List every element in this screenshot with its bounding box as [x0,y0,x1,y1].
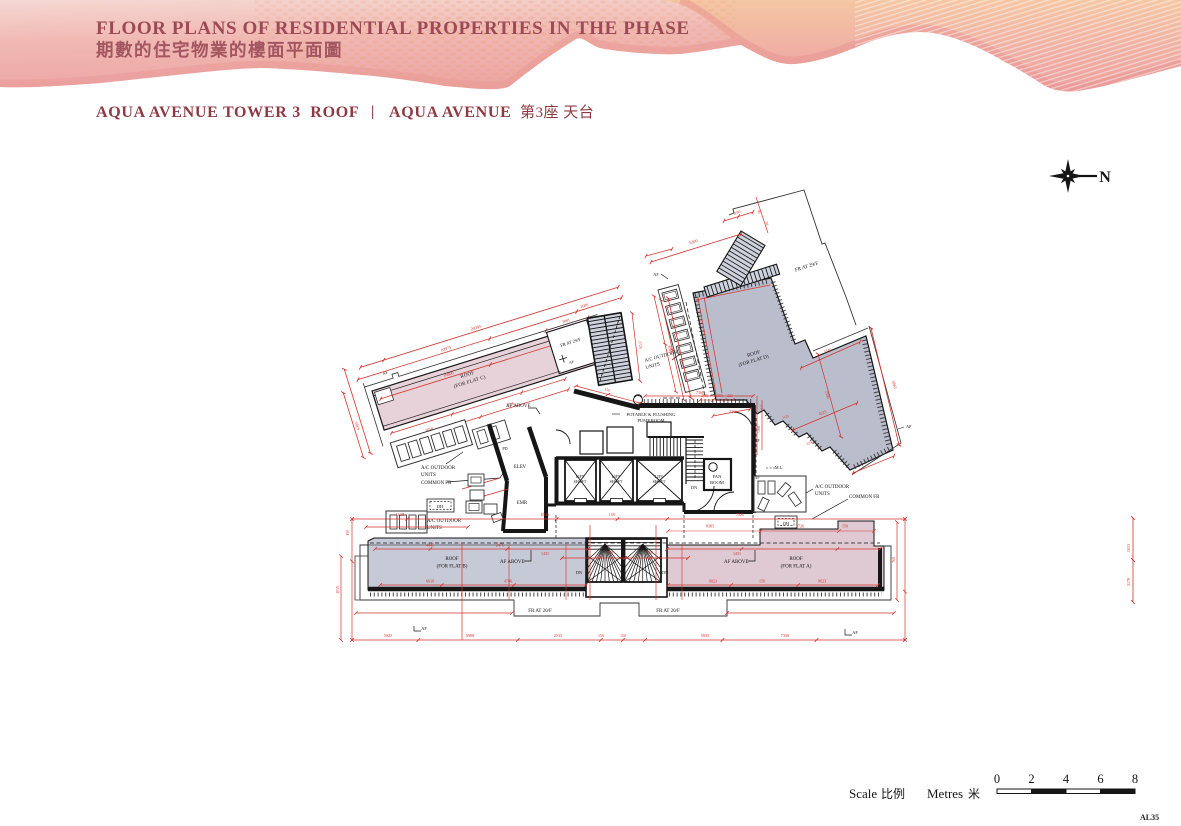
svg-text:2: 2 [1028,772,1034,786]
svg-text:ROOF: ROOF [789,557,803,562]
svg-text:150: 150 [604,387,611,392]
svg-text:5865: 5865 [891,380,898,389]
svg-text:150: 150 [759,579,765,584]
svg-text:10975: 10975 [440,344,453,352]
svg-text:UNITS: UNITS [421,473,436,478]
svg-text:FR AT 20/F: FR AT 20/F [656,609,680,614]
svg-text:750: 750 [607,551,613,555]
svg-text:750: 750 [647,551,653,555]
svg-text:7368: 7368 [757,426,761,434]
svg-text:9023: 9023 [709,579,717,584]
svg-text:|: | [371,104,374,120]
svg-text:150: 150 [346,530,350,536]
svg-text:150: 150 [842,524,848,529]
svg-text:比例: 比例 [881,787,905,801]
svg-text:5935: 5935 [701,633,710,638]
svg-text:1653: 1653 [1126,544,1131,552]
svg-text:8385: 8385 [706,524,714,529]
svg-text:AF ABOVE: AF ABOVE [500,560,525,565]
svg-text:150: 150 [609,512,615,517]
svg-text:FAN: FAN [713,474,723,479]
svg-text:FR AT 20/F: FR AT 20/F [528,609,552,614]
svg-text:6536: 6536 [541,512,550,517]
svg-text:6300: 6300 [689,238,699,245]
svg-text:6: 6 [1097,772,1103,786]
svg-text:N: N [1099,169,1111,186]
svg-text:2316: 2316 [729,410,737,414]
svg-text:20395: 20395 [470,323,483,331]
svg-text:2725: 2725 [638,341,644,350]
svg-text:(FOR FLAT B): (FOR FLAT B) [437,565,468,570]
svg-text:2476: 2476 [496,543,504,548]
svg-text:AF: AF [754,475,760,480]
svg-text:AF: AF [653,272,659,277]
svg-text:AF: AF [906,424,912,429]
svg-text:DN: DN [691,485,698,490]
svg-text:150: 150 [620,633,626,638]
svg-text:AF: AF [754,438,760,443]
svg-text:DN: DN [576,570,583,575]
svg-text:ELEV: ELEV [514,465,527,470]
svg-text:POTABLE & FLUSHING: POTABLE & FLUSHING [627,412,677,417]
svg-text:Metres: Metres [927,786,963,801]
svg-text:EMR: EMR [517,501,528,506]
svg-text:A/C OUTDOOR: A/C OUTDOOR [421,466,456,471]
svg-text:1035: 1035 [336,586,340,594]
svg-text:2726: 2726 [796,524,804,529]
svg-text:DH: DH [437,504,443,509]
svg-text:UNITS: UNITS [645,362,661,371]
svg-text:SHAFT: SHAFT [574,479,587,484]
svg-text:SHAFT: SHAFT [653,479,666,484]
svg-text:COMMON FR: COMMON FR [849,495,880,500]
svg-text:9623: 9623 [818,579,826,584]
svg-text:1431: 1431 [541,551,549,556]
svg-text:3178: 3178 [1126,578,1131,586]
svg-text:AQUA AVENUE: AQUA AVENUE [389,104,512,121]
svg-text:ROOM: ROOM [710,480,724,485]
svg-text:ROOF: ROOF [445,557,459,562]
svg-text:A/C OUTDOOR: A/C OUTDOOR [427,519,462,524]
svg-text:150: 150 [598,633,604,638]
svg-text:PD: PD [502,446,507,451]
svg-text:DH: DH [783,521,789,526]
svg-text:AF: AF [421,626,427,631]
svg-text:AQUA AVENUE TOWER 3 ROOF: AQUA AVENUE TOWER 3 ROOF [96,104,359,121]
svg-text:90: 90 [757,209,762,214]
svg-text:0: 0 [994,772,1000,786]
svg-text:5025: 5025 [384,633,393,638]
svg-text:米: 米 [968,787,980,801]
svg-text:M.L.: M.L. [775,465,783,470]
svg-text:6385: 6385 [354,421,361,430]
svg-text:4445: 4445 [426,543,434,548]
svg-text:SHAFT: SHAFT [610,479,623,484]
svg-text:5908: 5908 [466,633,475,638]
svg-text:1138: 1138 [396,512,404,517]
svg-text:7520: 7520 [736,512,745,517]
svg-text:FR AT 29/F: FR AT 29/F [794,261,819,274]
svg-text:4786: 4786 [504,579,512,584]
svg-text:7368: 7368 [696,390,704,395]
svg-text:769: 769 [892,557,896,563]
svg-text:6610: 6610 [426,579,434,584]
svg-text:AF ABOVE: AF ABOVE [506,404,531,409]
svg-text:AL35: AL35 [1140,813,1159,822]
svg-text:UNITS: UNITS [815,492,830,497]
svg-text:FLOOR PLANS OF RESIDENTIAL PRO: FLOOR PLANS OF RESIDENTIAL PROPERTIES IN… [96,18,690,39]
svg-text:4: 4 [1063,772,1070,786]
svg-text:期數的住宅物業的樓面平面圖: 期數的住宅物業的樓面平面圖 [96,40,343,60]
svg-text:第3座 天台: 第3座 天台 [520,103,594,121]
svg-text:DN: DN [662,570,669,575]
svg-text:AF: AF [852,630,858,635]
svg-text:2535: 2535 [554,633,563,638]
svg-text:(FOR FLAT A): (FOR FLAT A) [781,565,812,570]
svg-text:Scale: Scale [849,786,877,801]
svg-text:8: 8 [1132,772,1138,786]
svg-text:1250: 1250 [806,440,814,446]
svg-text:1431: 1431 [733,551,741,556]
svg-text:7358: 7358 [781,633,790,638]
svg-text:AF ABOVE: AF ABOVE [724,560,749,565]
svg-text:A/C OUTDOOR: A/C OUTDOOR [815,485,850,490]
